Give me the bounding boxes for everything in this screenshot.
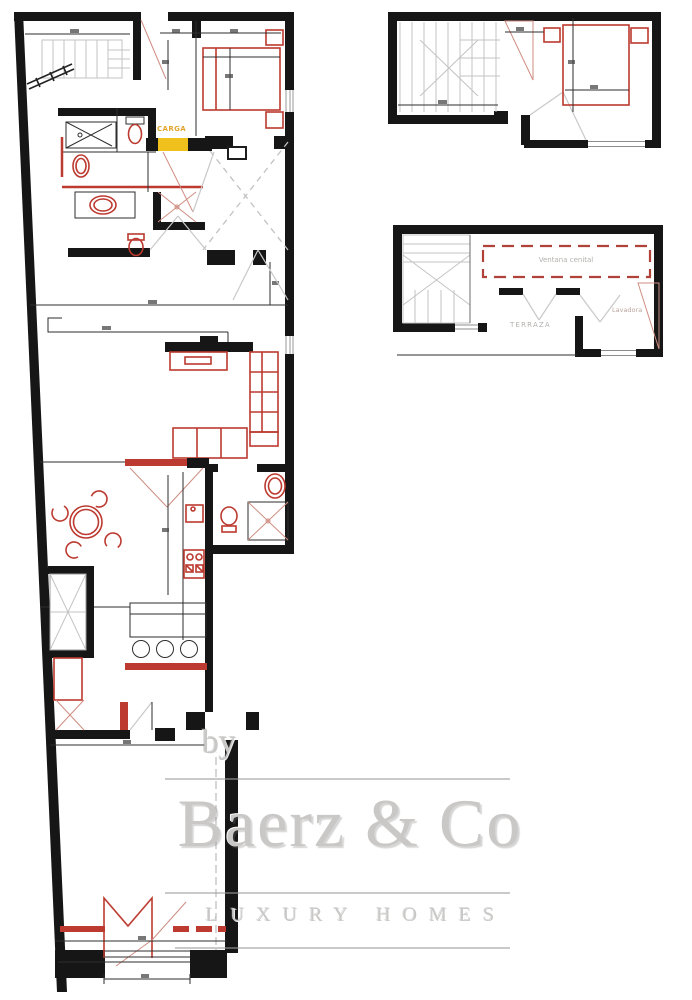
terrace-walls [393,225,663,357]
skylight-label: Ventana cenital [506,257,626,264]
watermark-by: by [202,724,236,762]
sofa-vertical [250,352,278,446]
main-staircase [25,29,130,89]
upper-staircase [398,22,500,112]
storage-closet [54,658,82,700]
shower-drain-icon [78,133,82,137]
toilet-icon [221,507,237,525]
terrace-floor-plan [393,225,663,357]
watermark-brand: Baerz & Co [155,784,545,863]
main-living-room [30,250,288,458]
upper-bedroom [505,18,648,112]
main-kitchen-dining [40,458,209,745]
main-terrace-void [203,142,288,250]
watermark-divider [165,892,510,894]
main-bedroom [141,20,283,136]
terraza-label: TERRAZA [510,322,551,329]
floor-plan-page: by Baerz & Co LUXURY HOMES CARGA Ventana… [0,0,692,1000]
bar-counter [130,603,206,637]
folding-door [104,898,152,958]
watermark: by Baerz & Co LUXURY HOMES [150,718,550,968]
watermark-divider [165,778,510,780]
toilet-icon [129,125,142,144]
stool-icon [157,641,174,658]
stool-icon [181,641,198,658]
lavadora-label: Lavadora [612,307,642,314]
tv-cabinet [170,352,227,370]
upper-floor-plan [388,12,661,148]
carga-label: CARGA [157,126,186,133]
sofa-horizontal [173,428,247,458]
watermark-tagline: LUXURY HOMES [155,904,545,927]
main-bathrooms [58,108,214,256]
watermark-divider [175,947,510,949]
stair-railing [27,64,74,89]
stool-icon [133,641,150,658]
elevator-shaft [48,566,94,658]
main-small-bathroom [221,474,288,540]
dining-table [49,489,124,561]
terrace-staircase [403,235,470,323]
terrace-door-swings [523,294,620,322]
carga-highlight [158,138,188,151]
stove [184,550,204,578]
